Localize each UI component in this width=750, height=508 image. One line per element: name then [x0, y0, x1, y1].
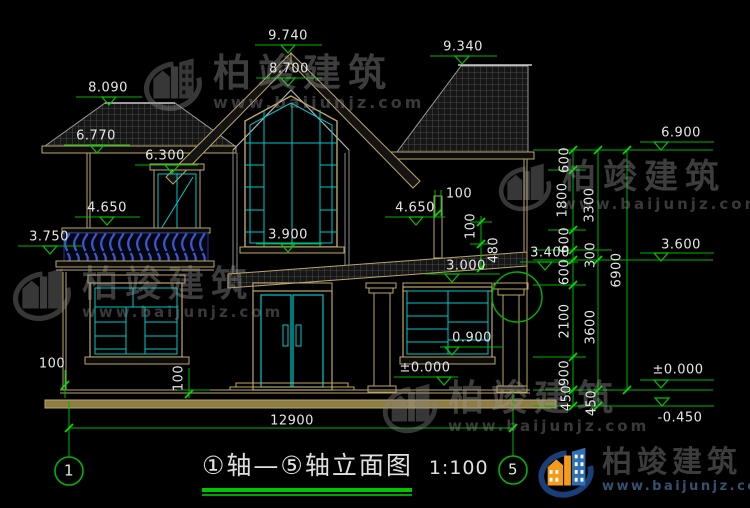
level-6900: 6.900: [661, 127, 701, 140]
title-underline-thick: [202, 488, 412, 492]
level-0000-right: ±0.000: [652, 364, 703, 377]
brand-logo: 柏竣建筑 www.baijunjz.com: [538, 441, 750, 501]
drawing-title: ①轴—⑤轴立面图: [202, 446, 413, 482]
level-9340: 9.340: [443, 41, 483, 54]
elevation-linework: [0, 0, 750, 508]
level-6300: 6.300: [145, 150, 185, 163]
level-4650-right: 4.650: [395, 202, 435, 215]
dim-chain-450b: 450: [586, 390, 599, 416]
cad-elevation-canvas: 柏竣建筑 www.baijunjz.com 柏竣建筑 www.baijunjz.…: [0, 0, 750, 508]
dim-chain-600b: 600: [559, 227, 572, 253]
title-underline-thin: [202, 494, 412, 496]
dim-chain-900: 900: [559, 360, 572, 386]
drawing-title-block: ①轴—⑤轴立面图 1:100: [202, 446, 489, 496]
dim-chain-3300: 3300: [584, 187, 597, 222]
level-3750: 3.750: [29, 231, 69, 244]
level-markers: [43, 45, 669, 406]
axis-bubble-5: 5: [508, 463, 518, 478]
level-minus-0450: -0.450: [658, 412, 703, 425]
level-0000-mid: ±0.000: [399, 362, 450, 375]
dim-chain-600c: 600: [559, 259, 572, 285]
drawing-scale: 1:100: [429, 457, 489, 479]
dim-total-12900: 12900: [270, 415, 314, 428]
dim-chain-3600: 3600: [585, 309, 598, 344]
brand-logo-icon: [538, 441, 596, 501]
level-3900: 3.900: [268, 229, 308, 242]
dim-chain-300: 300: [585, 242, 598, 268]
level-3600: 3.600: [661, 239, 701, 252]
level-3000: 3.000: [446, 260, 486, 273]
dim-chain-6900: 6900: [611, 252, 624, 287]
level-4650-left: 4.650: [87, 202, 127, 215]
level-6770: 6.770: [76, 130, 116, 143]
dim-100-flue-top: 100: [465, 213, 478, 239]
axis-bubble-1: 1: [64, 464, 74, 479]
dim-100-flue-width: 100: [446, 188, 472, 201]
dim-chain-1800: 1800: [557, 182, 570, 217]
level-8090: 8.090: [88, 82, 128, 95]
dim-480-flue: 480: [488, 237, 501, 263]
level-9740: 9.740: [268, 30, 308, 43]
dimension-ticks: [61, 146, 631, 432]
dim-chain-600a: 600: [559, 147, 572, 173]
brand-url: www.baijunjz.com: [602, 479, 750, 495]
dim-100-axis-offset: 100: [39, 358, 65, 371]
dim-chain-2100: 2100: [559, 303, 572, 338]
dim-chain-450a: 450: [561, 385, 574, 411]
level-8700: 8.700: [269, 63, 309, 76]
level-0900: 0.900: [452, 332, 492, 345]
dim-100-wall: 100: [173, 365, 186, 391]
brand-name: 柏竣建筑: [602, 447, 750, 479]
